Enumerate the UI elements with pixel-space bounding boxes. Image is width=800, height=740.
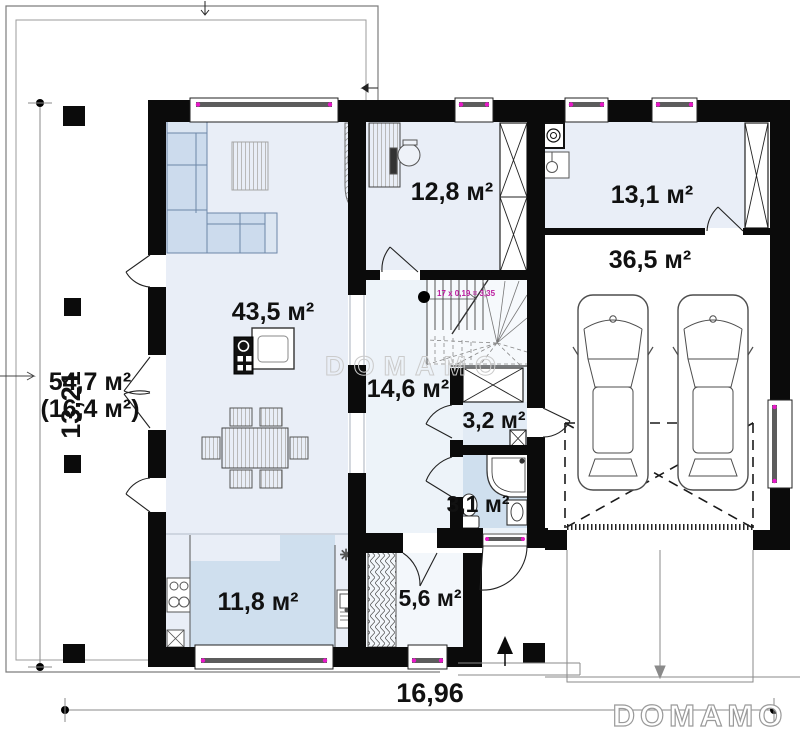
label-office: 12,8 м²: [411, 178, 493, 206]
label-kitchen: 11,8 м²: [217, 588, 298, 616]
pillar: [64, 298, 81, 316]
washing-machine: [543, 123, 564, 148]
rug: [232, 142, 268, 190]
label-entry: 3,2 м²: [462, 407, 525, 433]
window: [190, 98, 338, 122]
dishwasher: [167, 630, 184, 647]
stove: [167, 578, 190, 612]
entrance-arrow: [497, 636, 513, 654]
car-icon: [673, 295, 753, 490]
window: [565, 98, 608, 122]
pillar: [63, 644, 85, 663]
porch-pillar: [523, 643, 545, 663]
front-door-sill: [483, 534, 527, 546]
dim-width: 16,96: [396, 678, 464, 708]
stair-formula: 17 x 0,19 = 3,35: [437, 289, 496, 298]
terrace-door: [126, 478, 150, 512]
pillar: [63, 106, 85, 126]
driveway-arrow: [655, 666, 665, 678]
label-garage: 36,5 м²: [609, 246, 691, 274]
dim-height: 13,21: [56, 371, 86, 439]
window: [768, 400, 792, 488]
stair-start-marker: [418, 291, 430, 303]
car-icon: [573, 295, 653, 490]
bathroom-sink: [507, 500, 527, 525]
brand-logo: DOMAMO: [613, 698, 788, 733]
floor-plan-canvas: 17 x 0,19 = 3,35: [0, 0, 800, 740]
duct-shaft-utility: [745, 123, 768, 228]
front-entrance-door: [480, 546, 527, 590]
driveway: [567, 550, 753, 682]
wardrobe-rail: [368, 540, 396, 647]
label-vestibule: 5,6 м²: [398, 585, 461, 611]
terrace-door: [126, 255, 150, 287]
window: [195, 645, 333, 669]
window: [455, 98, 493, 122]
laundry-tub: [543, 152, 569, 178]
label-utility: 13,1 м²: [611, 181, 693, 209]
window: [408, 645, 447, 669]
duct-shaft-office: [500, 123, 527, 272]
label-bathroom: 3,1 м²: [446, 491, 509, 517]
label-living: 43,5 м²: [232, 298, 314, 326]
pillar: [64, 455, 81, 473]
window: [652, 98, 697, 122]
floor-plan-drawing: 17 x 0,19 = 3,35: [0, 0, 800, 740]
watermark-center: DOMAMO: [325, 351, 505, 381]
